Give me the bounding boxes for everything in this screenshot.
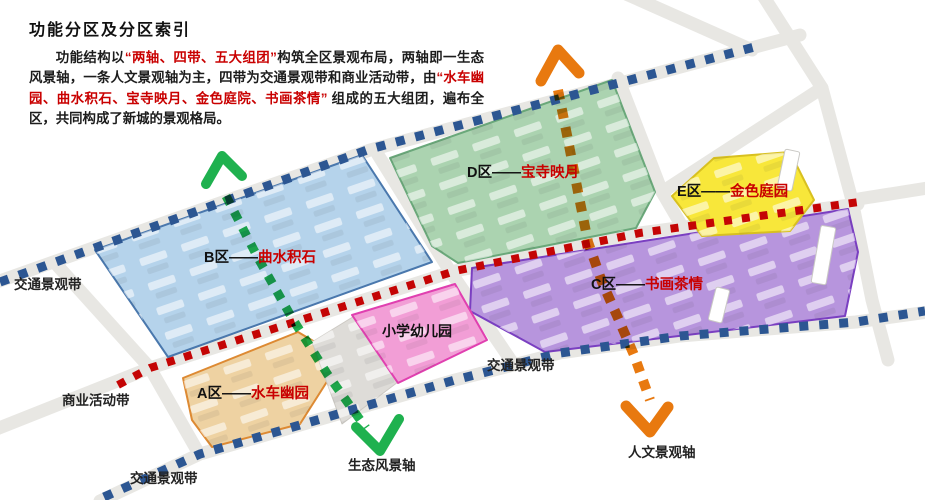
eco-axis-label: 生态风景轴 bbox=[348, 457, 416, 473]
zone-c-name: 书画茶情 bbox=[645, 275, 703, 293]
eco-axis-arrow-up bbox=[206, 156, 242, 184]
zone-e-name: 金色庭园 bbox=[729, 182, 788, 200]
page-title: 功能分区及分区索引 bbox=[29, 16, 191, 40]
zone-c-id: C区—— bbox=[591, 276, 645, 293]
zone-a-id: A区—— bbox=[197, 385, 251, 402]
zoning-diagram: B区——曲水积石 D区——宝寺映月 E区——金色庭园 C区——书画茶情 A区——… bbox=[0, 0, 925, 500]
zone-e-id: E区—— bbox=[677, 183, 731, 200]
zone-b-label: B区——曲水积石 bbox=[204, 248, 316, 266]
intro-paragraph: 功能结构以“两轴、四带、五大组团”构筑全区景观布局，两轴即一生态风景轴，一条人文… bbox=[29, 48, 484, 130]
zone-b-id: B区—— bbox=[204, 249, 258, 266]
zone-d-name: 宝寺映月 bbox=[521, 163, 579, 181]
zone-a-label: A区——水车幽园 bbox=[197, 384, 309, 402]
culture-axis-arrow-up bbox=[541, 50, 579, 81]
commercial-band-label: 商业活动带 bbox=[62, 392, 130, 408]
intro-quote-1: “两轴、四带、五大组团” bbox=[125, 50, 277, 65]
zone-a-name: 水车幽园 bbox=[251, 384, 309, 402]
road-right-spur bbox=[852, 188, 925, 200]
culture-axis-label: 人文景观轴 bbox=[628, 444, 696, 460]
traffic-band-label-mid: 交通景观带 bbox=[487, 357, 555, 373]
school-label: 小学幼儿园 bbox=[382, 323, 452, 339]
traffic-band-label-bottom: 交通景观带 bbox=[130, 470, 198, 486]
zone-d-id: D区—— bbox=[467, 164, 521, 181]
zone-e-label: E区——金色庭园 bbox=[677, 182, 788, 200]
traffic-band-label-left: 交通景观带 bbox=[14, 276, 82, 292]
eco-axis-arrow-down bbox=[356, 419, 399, 451]
zone-c-label: C区——书画茶情 bbox=[591, 275, 703, 293]
culture-axis-arrow-down bbox=[626, 406, 668, 432]
road-top-vertical bbox=[626, 0, 752, 50]
zone-b-name: 曲水积石 bbox=[258, 248, 316, 266]
intro-text-1: 功能结构以 bbox=[56, 50, 125, 65]
zone-d-label: D区——宝寺映月 bbox=[467, 163, 579, 181]
